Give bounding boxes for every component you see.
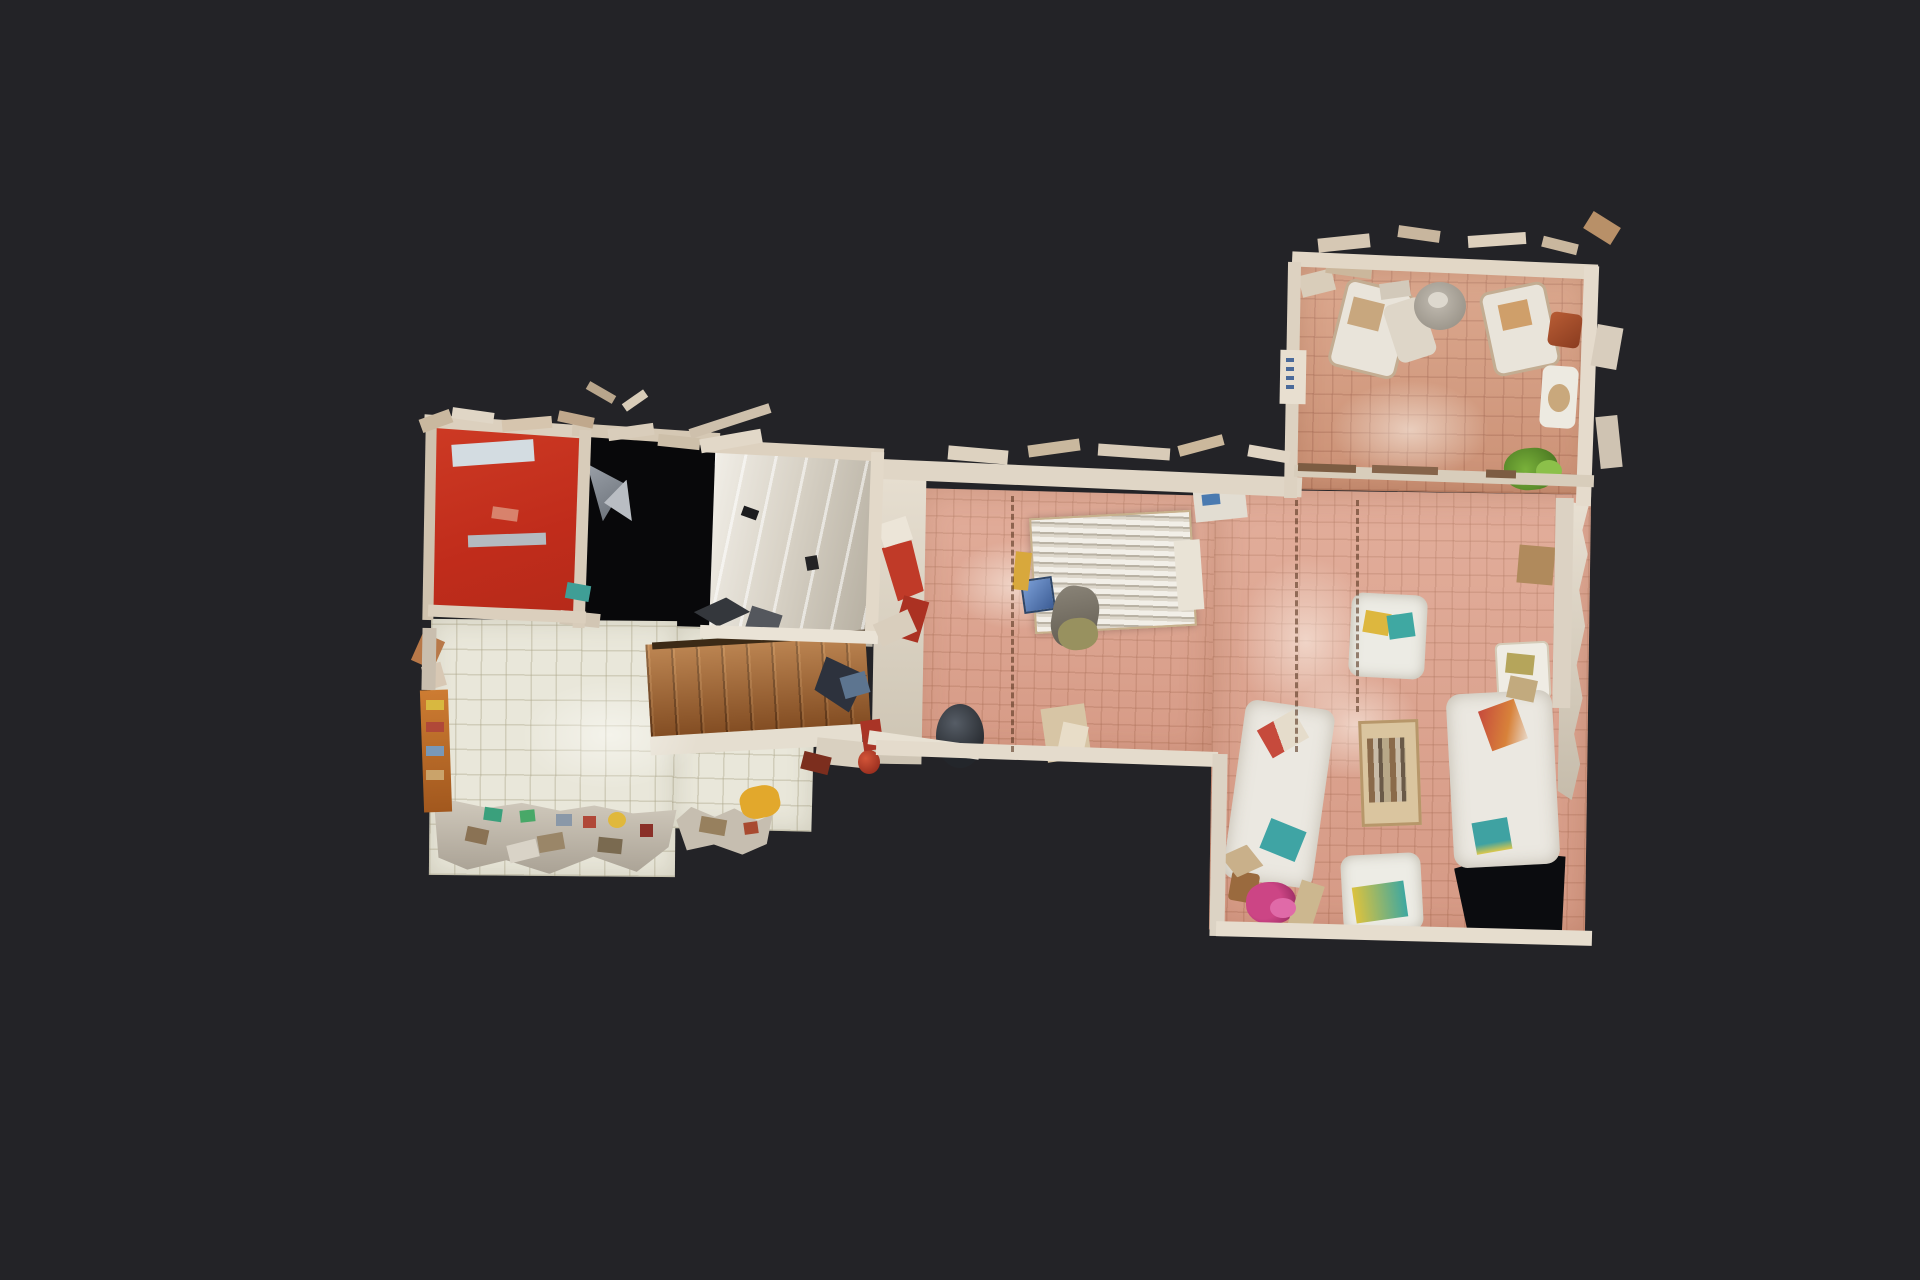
cabinet-shelf-item bbox=[426, 700, 444, 710]
debris-fragment bbox=[1027, 438, 1080, 457]
flower-bouquet-light bbox=[1270, 898, 1296, 918]
clutter-dot-blue bbox=[556, 814, 572, 826]
clutter-dot-teal bbox=[483, 807, 503, 822]
clutter-dot-red bbox=[583, 816, 596, 828]
unscanned-room-floor[interactable] bbox=[572, 434, 717, 643]
debris-fragment bbox=[1595, 415, 1622, 469]
clutter-ball-yellow bbox=[608, 812, 626, 828]
debris-fragment bbox=[1177, 434, 1224, 457]
cabinet-shelf-item bbox=[426, 746, 444, 756]
app-background: { "app": { "view": "dollhouse-top-down-f… bbox=[0, 0, 1920, 1280]
living-room-right-wall bbox=[1552, 498, 1574, 708]
wall-fragment-blue bbox=[1201, 493, 1220, 506]
armchair-bottom-blanket bbox=[1352, 881, 1409, 924]
wall-patch-brown bbox=[1516, 545, 1555, 586]
clutter-dot-green bbox=[519, 809, 535, 823]
coffee-table-clutter bbox=[1367, 737, 1407, 802]
terrace-table-items bbox=[1428, 292, 1448, 308]
sofa-right-pillow-teal bbox=[1471, 817, 1512, 855]
debris-fragment bbox=[586, 381, 616, 404]
floorplan-canvas[interactable] bbox=[0, 0, 1920, 1280]
debris-fragment bbox=[1397, 225, 1440, 243]
door-track-line bbox=[1356, 500, 1362, 712]
desk-side-panel bbox=[1174, 539, 1205, 611]
terracotta-pot bbox=[1547, 311, 1583, 349]
kitchen-left-wall bbox=[421, 628, 436, 690]
debris-fragment bbox=[1468, 232, 1527, 248]
terrace-door-segment bbox=[1486, 469, 1516, 478]
door-track-line bbox=[1011, 496, 1017, 752]
debris-fragment bbox=[622, 389, 648, 411]
door-track-line bbox=[1295, 500, 1301, 752]
debris-fragment bbox=[1317, 233, 1370, 252]
debris-fragment bbox=[1098, 444, 1171, 461]
debris-fragment bbox=[1583, 211, 1621, 245]
silver-room-speck bbox=[805, 555, 819, 571]
clutter-dot-red bbox=[743, 821, 759, 835]
living-room-left-wall-lower bbox=[1209, 754, 1227, 936]
clutter-bit-brown bbox=[597, 837, 622, 854]
armchair-mid-pillow-teal bbox=[1386, 612, 1415, 639]
debris-fragment bbox=[1591, 324, 1624, 370]
cabinet-shelf-item bbox=[426, 770, 444, 780]
column-graffiti-marks bbox=[1286, 358, 1294, 394]
debris-fragment bbox=[1541, 236, 1579, 255]
side-table-khaki-item bbox=[1505, 653, 1535, 676]
cabinet-shelf-item bbox=[426, 722, 444, 732]
clutter-dot-darkred bbox=[640, 824, 653, 837]
